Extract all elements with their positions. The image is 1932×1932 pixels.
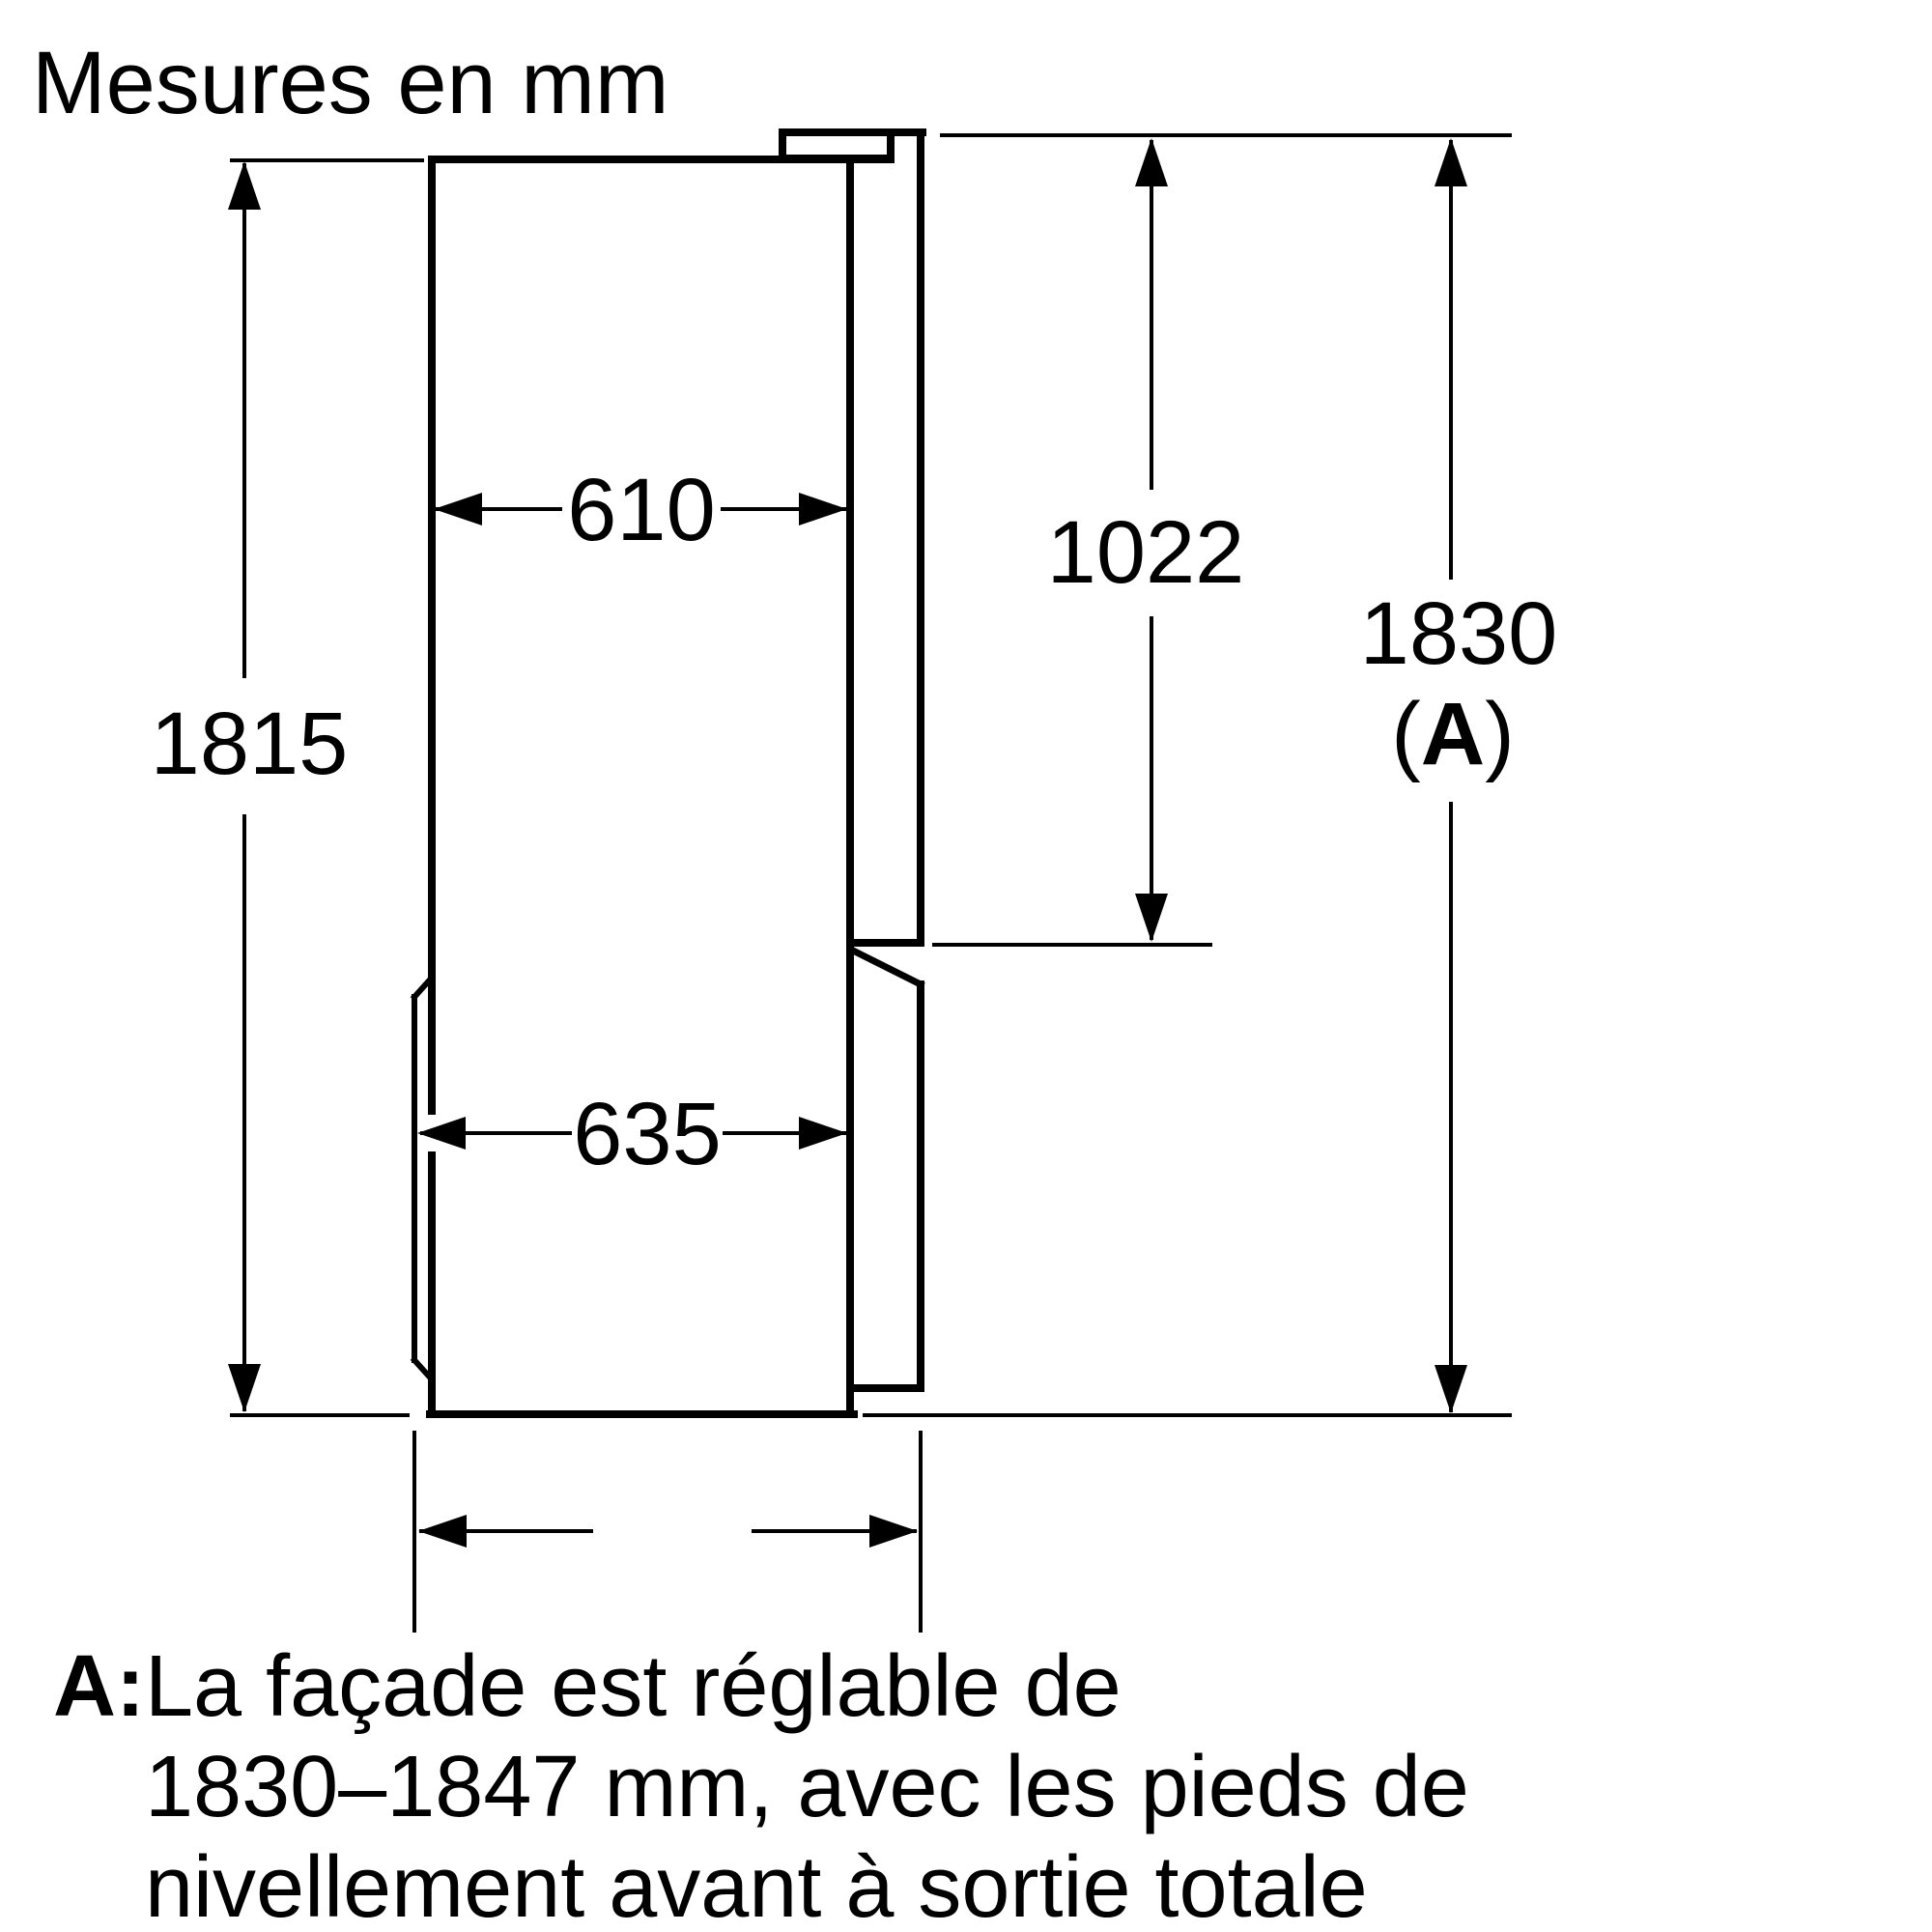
dim-label-1830-key: (A) — [1391, 685, 1515, 783]
footnote-key: A: — [53, 1636, 145, 1737]
footnote-text: La façade est réglable de 1830–1847 mm, … — [145, 1636, 1889, 1932]
dim-1022-arrow-up — [1135, 138, 1168, 186]
dim-1815-arrow-down — [228, 1364, 261, 1412]
dim-610-arrow-right — [799, 493, 847, 526]
footnote-line: 1830–1847 mm, avec les pieds de — [145, 1737, 1889, 1837]
dim-1022-arrow-down — [1135, 894, 1168, 942]
footnote: A: La façade est réglable de 1830–1847 m… — [53, 1636, 1889, 1932]
dim-1830-arrow-down — [1435, 1365, 1467, 1413]
footnote-line: nivellement avant à sortie totale — [145, 1837, 1889, 1932]
page-title: Mesures en mm — [32, 35, 669, 132]
dim-635-arrow-right — [799, 1117, 847, 1150]
dim-635-arrow-left — [417, 1117, 466, 1150]
dim-label-1815: 1815 — [151, 695, 349, 793]
dim-1815-arrow-up — [228, 161, 261, 210]
dim-label-1830: 1830 — [1360, 584, 1558, 683]
dim-label-1022: 1022 — [1047, 503, 1245, 602]
footnote-line: La façade est réglable de — [145, 1636, 1889, 1737]
dim-label-635: 635 — [573, 1085, 722, 1183]
measurement-diagram-page: 181561063510221830(A) Mesures en mm A: L… — [0, 0, 1932, 1932]
lower-door-top-slant-line — [851, 950, 921, 984]
dim-610-arrow-left — [434, 493, 482, 526]
dim-731-arrow-right — [869, 1515, 918, 1548]
dim-1830-arrow-up — [1435, 138, 1467, 186]
dim-731-arrow-left — [418, 1515, 467, 1548]
dim-label-610: 610 — [567, 461, 716, 559]
